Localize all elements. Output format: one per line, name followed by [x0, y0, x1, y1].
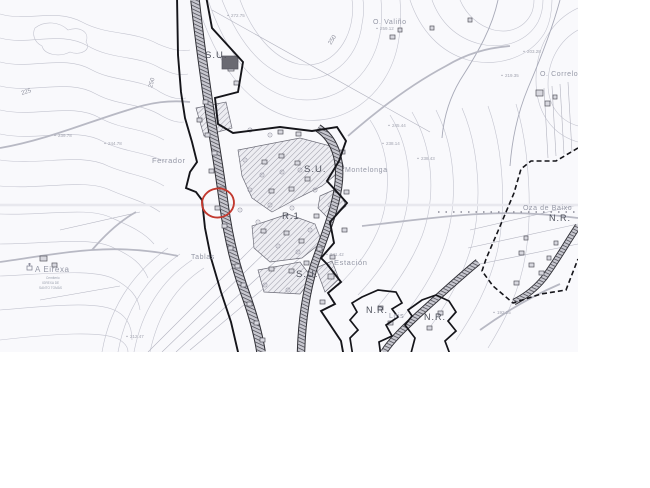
map-image: S.U.S.U.S.U.R.1N.R.N.R.N.R. FerradorO. V… [0, 0, 650, 488]
places-label: A Eirexa [35, 265, 70, 274]
elevation-point [417, 158, 418, 159]
zones-label: R.1 [282, 211, 300, 222]
zones-label: N.R. [366, 305, 388, 315]
elevation-point [493, 312, 494, 313]
places-label: Estación [334, 258, 368, 267]
elevations-label: 241.42 [330, 252, 344, 257]
zones-label: N.R. [424, 312, 446, 322]
elevations-label: 219.35 [505, 73, 519, 78]
places-label: Ferrador [152, 156, 186, 165]
elevation-point [388, 125, 389, 126]
elevations-label: 245.44 [392, 123, 406, 128]
places-label: Lois [389, 313, 404, 320]
zones-label: N.R. [549, 213, 571, 223]
elevations-label: 272.75 [231, 13, 245, 18]
elevation-point [376, 28, 377, 29]
zones-label: S.U. [296, 269, 318, 280]
scanned-map-page: S.U.S.U.S.U.R.1N.R.N.R.N.R. FerradorO. V… [0, 0, 650, 488]
elevation-point [54, 135, 55, 136]
elevation-point [104, 143, 105, 144]
elevations-label: 238.43 [421, 156, 435, 161]
elevation-point [382, 143, 383, 144]
zones-label: S.U. [304, 164, 326, 175]
small-notes-label: Cemiterio [46, 276, 60, 280]
small-notes-label: SANTO TOMÁS [39, 286, 62, 290]
places-label: Montelonga [345, 167, 388, 174]
elevations-label: 212.47 [130, 334, 144, 339]
small-notes-label: IGREXA DE [42, 281, 59, 285]
elevations-label: 203.28 [527, 49, 541, 54]
elevation-point [326, 254, 327, 255]
places-label: O. Valiño [373, 19, 407, 26]
elevation-point [523, 51, 524, 52]
elevations-label: 192.25 [497, 310, 511, 315]
elevations-label: 238.14 [386, 141, 400, 146]
places-label: Oza de Baixo [523, 205, 572, 212]
elevation-point [227, 15, 228, 16]
elevation-point [501, 75, 502, 76]
elevations-label: 244.78 [108, 141, 122, 146]
places-label: O. Correlo [540, 71, 578, 78]
elevation-point [126, 336, 127, 337]
zones-label: S.U. [205, 50, 227, 61]
elevations-label: 259.12 [380, 26, 394, 31]
elevations-label: 239.78 [58, 133, 72, 138]
places-label: Tablas [191, 254, 215, 261]
